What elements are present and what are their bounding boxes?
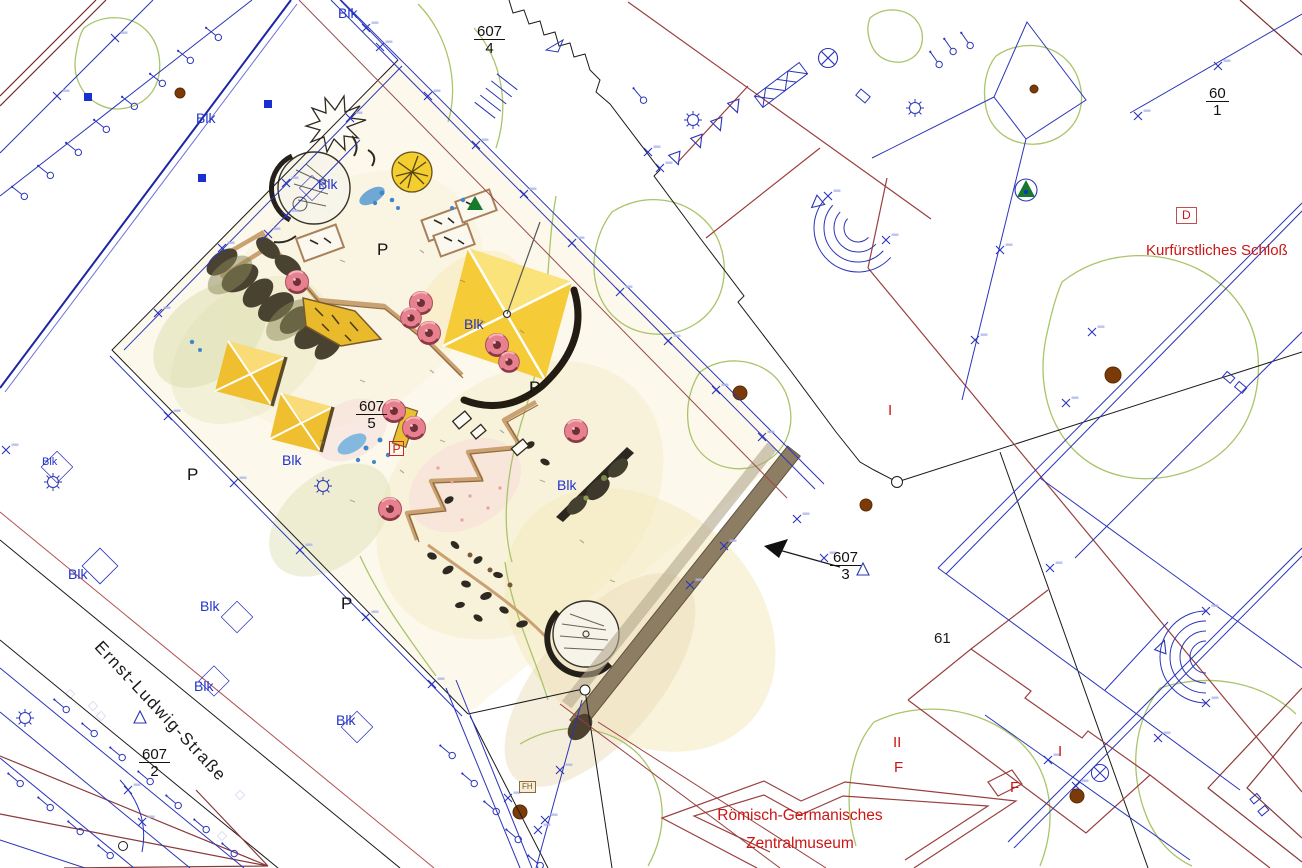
survey-point-symbols (819, 49, 1109, 782)
arc-steps-1 (1160, 611, 1206, 703)
blk-label: Blk (318, 177, 337, 191)
sketch-tree-2 (547, 601, 619, 675)
wing-label: F (1010, 780, 1019, 795)
stairs-hatched (754, 63, 807, 108)
parking-label: P (377, 241, 388, 258)
watercolor-washes (112, 60, 828, 818)
parking-boxed-label: P (389, 441, 404, 456)
parcel-label-61: 61 (934, 631, 951, 646)
museum-name-line1: Römisch-Germanisches (695, 808, 905, 824)
blk-label: Blk (282, 453, 301, 467)
schloss-name: Kurfürstliches Schloß (1146, 243, 1288, 258)
storeys-label: II (893, 735, 901, 750)
arc-steps-2 (796, 199, 891, 291)
parcel-label-607-5: 607 5 (356, 399, 387, 431)
protected-tree-icon (1015, 179, 1037, 201)
blk-label: Blk (200, 599, 219, 613)
stairs-comb (475, 74, 518, 118)
site-plan-canvas: 607 4 60 1 607 5 607 2 607 3 61 D Kurfür… (0, 0, 1302, 868)
open-arrow-icon (546, 40, 563, 52)
fh-marker-box: FH (519, 781, 536, 793)
museum-name-line2: Zentralmuseum (695, 836, 905, 852)
blk-label: Blk (42, 457, 57, 468)
parking-label: P (341, 595, 352, 612)
blk-label: Blk (338, 6, 357, 20)
wing-label: F (894, 760, 903, 775)
storeys-label: I (1058, 744, 1062, 759)
blk-label: Blk (557, 478, 576, 492)
parcel-label-607-3: 607 3 (830, 550, 861, 582)
d-marker-box: D (1176, 207, 1197, 224)
storeys-label: I (888, 403, 892, 418)
blk-label: Blk (194, 679, 213, 693)
parcel-label-607-2: 607 2 (139, 747, 170, 779)
blk-label: Blk (464, 317, 483, 331)
parcel-label-607-4: 607 4 (474, 24, 505, 56)
blk-label: Blk (336, 713, 355, 727)
blk-label: Blk (68, 567, 87, 581)
parking-label: P (187, 466, 198, 483)
parcel-label-60-1: 60 1 (1206, 86, 1229, 118)
parking-label: P (529, 379, 540, 396)
north-arrow-icon (764, 539, 788, 558)
blk-label: Blk (196, 111, 215, 125)
